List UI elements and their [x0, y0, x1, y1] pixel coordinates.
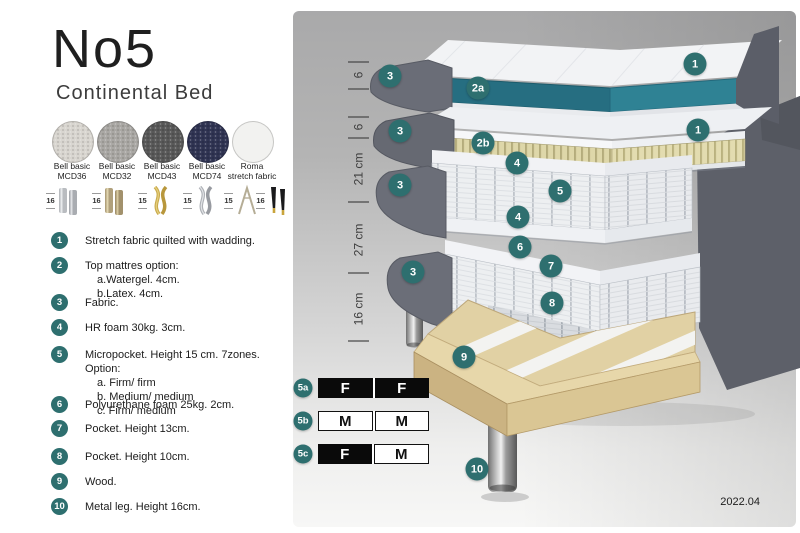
firmness-cell: F: [318, 378, 373, 398]
dimension-label: 6: [352, 123, 366, 130]
dimension-label: 16 cm: [352, 293, 366, 326]
callout-2a: 2a: [467, 77, 490, 100]
fabric-corner-lower: [376, 166, 446, 238]
firmness-cell: M: [375, 411, 430, 431]
callout-8: 8: [541, 292, 564, 315]
callout-10: 10: [466, 458, 489, 481]
callout-1-2: 1: [687, 119, 710, 142]
callout-3-2: 3: [389, 120, 412, 143]
callout-1: 1: [684, 53, 707, 76]
dimension-label: 21 cm: [352, 153, 366, 186]
callout-7: 7: [540, 255, 563, 278]
firmness-row-5c: FM: [318, 444, 429, 464]
firmness-row-5b: MM: [318, 411, 429, 431]
firmness-row-5a: FF: [318, 378, 429, 398]
callout-3: 3: [379, 65, 402, 88]
callout-4: 4: [506, 152, 529, 175]
firmness-cell: F: [318, 444, 372, 464]
callout-9: 9: [453, 346, 476, 369]
callout-6: 6: [509, 236, 532, 259]
callout-2b: 2b: [472, 132, 495, 155]
dimension-label: 6: [352, 71, 366, 78]
top-mattress-layer: [371, 26, 783, 124]
firmness-cell: F: [375, 378, 430, 398]
callout-3-4: 3: [402, 261, 425, 284]
firmness-cell: M: [374, 444, 430, 464]
firmness-badge-5a: 5a: [294, 379, 313, 398]
dimension-ruler: 6621 cm27 cm16 cm: [348, 62, 369, 341]
firmness-cell: M: [318, 411, 373, 431]
callout-4-2: 4: [507, 206, 530, 229]
firmness-badge-5b: 5b: [294, 412, 313, 431]
callout-5: 5: [549, 180, 572, 203]
callout-3-3: 3: [389, 174, 412, 197]
dimension-label: 27 cm: [352, 224, 366, 257]
revision-date: 2022.04: [690, 496, 760, 508]
firmness-badge-5c: 5c: [294, 445, 313, 464]
